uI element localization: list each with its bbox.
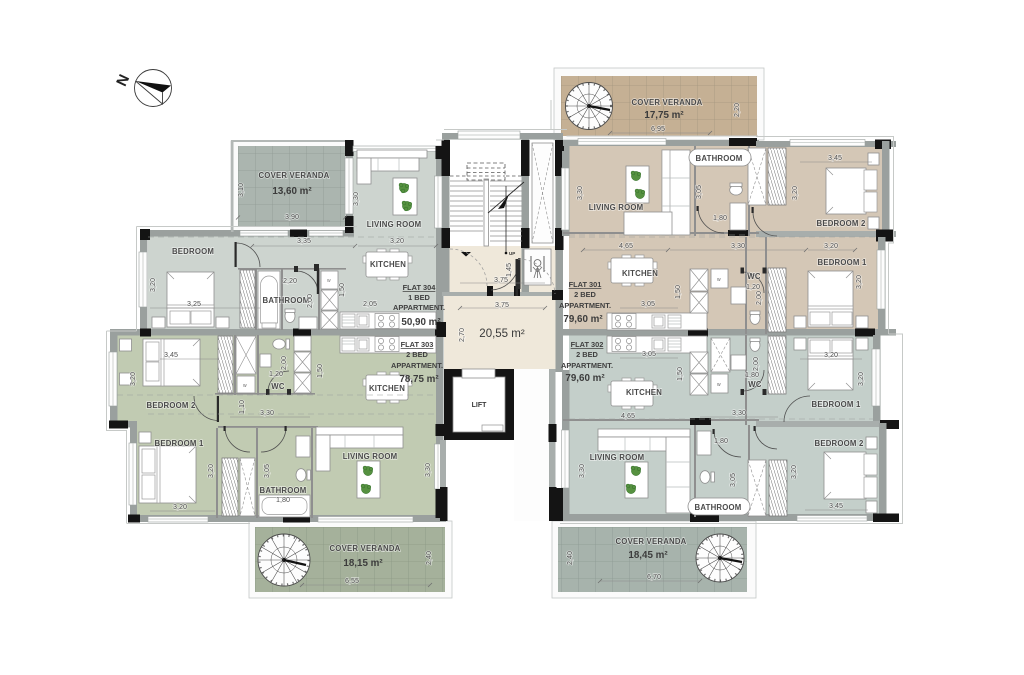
svg-text:1,80: 1,80 [713,213,727,222]
svg-text:13,60 m²: 13,60 m² [272,186,312,197]
svg-text:2,40: 2,40 [424,551,433,565]
svg-text:KITCHEN: KITCHEN [626,388,662,397]
svg-text:BEDROOM 1: BEDROOM 1 [817,258,866,267]
svg-text:6,55: 6,55 [345,576,359,585]
svg-text:4,65: 4,65 [621,411,635,420]
svg-text:BEDROOM 2: BEDROOM 2 [816,219,865,228]
svg-text:2,05: 2,05 [363,299,377,308]
svg-text:3,30: 3,30 [575,186,584,200]
svg-text:2,40: 2,40 [565,551,574,565]
svg-text:50,90 m²: 50,90 m² [401,317,441,328]
svg-text:3,05: 3,05 [641,299,655,308]
svg-text:3,75: 3,75 [495,300,509,309]
svg-text:3,90: 3,90 [285,212,299,221]
svg-text:3,45: 3,45 [164,350,178,359]
svg-text:1,45: 1,45 [504,263,513,277]
svg-text:KITCHEN: KITCHEN [370,260,406,269]
svg-text:BATHROOM: BATHROOM [263,296,310,305]
svg-text:1,50: 1,50 [315,364,324,378]
svg-text:2,70: 2,70 [457,328,466,342]
svg-text:w: w [243,383,247,389]
svg-text:20,55 m²: 20,55 m² [479,328,525,340]
svg-text:3,20: 3,20 [148,278,157,292]
svg-text:1,10: 1,10 [237,400,246,414]
svg-text:3,30: 3,30 [731,241,745,250]
svg-text:3,30: 3,30 [577,464,586,478]
svg-text:2,00: 2,00 [305,294,314,308]
svg-text:2,00: 2,00 [751,357,760,371]
svg-text:3,20: 3,20 [824,350,838,359]
svg-text:3,20: 3,20 [790,186,799,200]
svg-text:79,60 m²: 79,60 m² [563,314,603,325]
svg-text:w: w [717,277,721,283]
svg-text:1,50: 1,50 [673,285,682,299]
svg-text:COVER VERANDA: COVER VERANDA [615,537,686,546]
svg-text:COVER VERANDA: COVER VERANDA [329,544,400,553]
svg-text:17,75 m²: 17,75 m² [644,110,684,121]
svg-text:3,05: 3,05 [642,349,656,358]
svg-text:6,70: 6,70 [647,572,661,581]
svg-text:3,25: 3,25 [187,299,201,308]
svg-text:BEDROOM: BEDROOM [172,247,214,256]
svg-text:2,00: 2,00 [754,291,763,305]
svg-text:FLAT 303: FLAT 303 [401,340,434,349]
svg-text:APPARTMENT.: APPARTMENT. [391,361,443,370]
svg-text:WC: WC [747,272,761,281]
svg-text:BEDROOM 1: BEDROOM 1 [154,439,203,448]
svg-text:3,20: 3,20 [854,275,863,289]
svg-text:3,20: 3,20 [128,372,137,386]
svg-text:3,30: 3,30 [423,463,432,477]
svg-text:6,95: 6,95 [651,124,665,133]
svg-text:18,15 m²: 18,15 m² [343,558,383,569]
svg-text:78,75 m²: 78,75 m² [399,374,439,385]
svg-text:2 BED: 2 BED [574,290,596,299]
svg-text:3,05: 3,05 [694,185,703,199]
svg-text:18,45 m²: 18,45 m² [628,550,668,561]
svg-text:LIVING ROOM: LIVING ROOM [589,203,644,212]
svg-text:LIVING ROOM: LIVING ROOM [367,220,422,229]
svg-text:2 BED: 2 BED [576,350,598,359]
svg-text:BEDROOM 2: BEDROOM 2 [146,401,195,410]
svg-text:3,20: 3,20 [206,464,215,478]
svg-text:4,65: 4,65 [619,241,633,250]
svg-text:3,30: 3,30 [351,192,360,206]
svg-text:LIVING ROOM: LIVING ROOM [343,452,398,461]
svg-text:FLAT 304: FLAT 304 [403,283,437,292]
svg-text:2 BED: 2 BED [406,350,428,359]
svg-text:APPARTMENT.: APPARTMENT. [559,301,611,310]
svg-text:1,80: 1,80 [714,436,728,445]
svg-text:1,50: 1,50 [675,367,684,381]
svg-text:WC: WC [271,382,285,391]
svg-text:3,20: 3,20 [789,465,798,479]
svg-text:2,20: 2,20 [732,103,741,117]
svg-text:LIFT: LIFT [472,402,487,409]
svg-text:79,60 m²: 79,60 m² [565,373,605,384]
svg-text:BATHROOM: BATHROOM [696,154,743,163]
svg-text:2,00: 2,00 [279,356,288,370]
svg-text:1,50: 1,50 [337,283,346,297]
svg-text:w: w [717,382,721,388]
svg-text:FLAT 302: FLAT 302 [571,340,604,349]
svg-text:COVER VERANDA: COVER VERANDA [258,171,329,180]
svg-text:3,10: 3,10 [236,183,245,197]
svg-text:BATHROOM: BATHROOM [695,503,742,512]
svg-text:1,20: 1,20 [746,282,760,291]
svg-text:3,30: 3,30 [260,408,274,417]
svg-text:3,05: 3,05 [262,464,271,478]
svg-text:3,45: 3,45 [829,501,843,510]
svg-text:FLAT 301: FLAT 301 [569,280,602,289]
svg-text:2,20: 2,20 [283,276,297,285]
svg-text:3,35: 3,35 [297,236,311,245]
svg-text:3,45: 3,45 [828,153,842,162]
svg-text:BATHROOM: BATHROOM [260,486,307,495]
svg-text:3,20: 3,20 [856,372,865,386]
svg-text:WC: WC [748,380,762,389]
svg-text:KITCHEN: KITCHEN [369,384,405,393]
svg-text:APPARTMENT.: APPARTMENT. [561,361,613,370]
svg-text:LIVING ROOM: LIVING ROOM [590,453,645,462]
svg-text:3,05: 3,05 [728,473,737,487]
svg-text:BEDROOM 1: BEDROOM 1 [811,400,860,409]
svg-text:UP: UP [509,251,515,256]
svg-text:COVER VERANDA: COVER VERANDA [631,98,702,107]
svg-text:3,20: 3,20 [390,236,404,245]
svg-text:1 BED: 1 BED [408,293,430,302]
svg-text:3,20: 3,20 [824,241,838,250]
svg-text:3,20: 3,20 [173,502,187,511]
svg-text:3,30: 3,30 [732,408,746,417]
svg-text:BEDROOM 2: BEDROOM 2 [814,439,863,448]
svg-text:w: w [327,278,331,284]
svg-text:1,80: 1,80 [276,495,290,504]
svg-text:APPARTMENT.: APPARTMENT. [393,303,445,312]
svg-text:KITCHEN: KITCHEN [622,269,658,278]
